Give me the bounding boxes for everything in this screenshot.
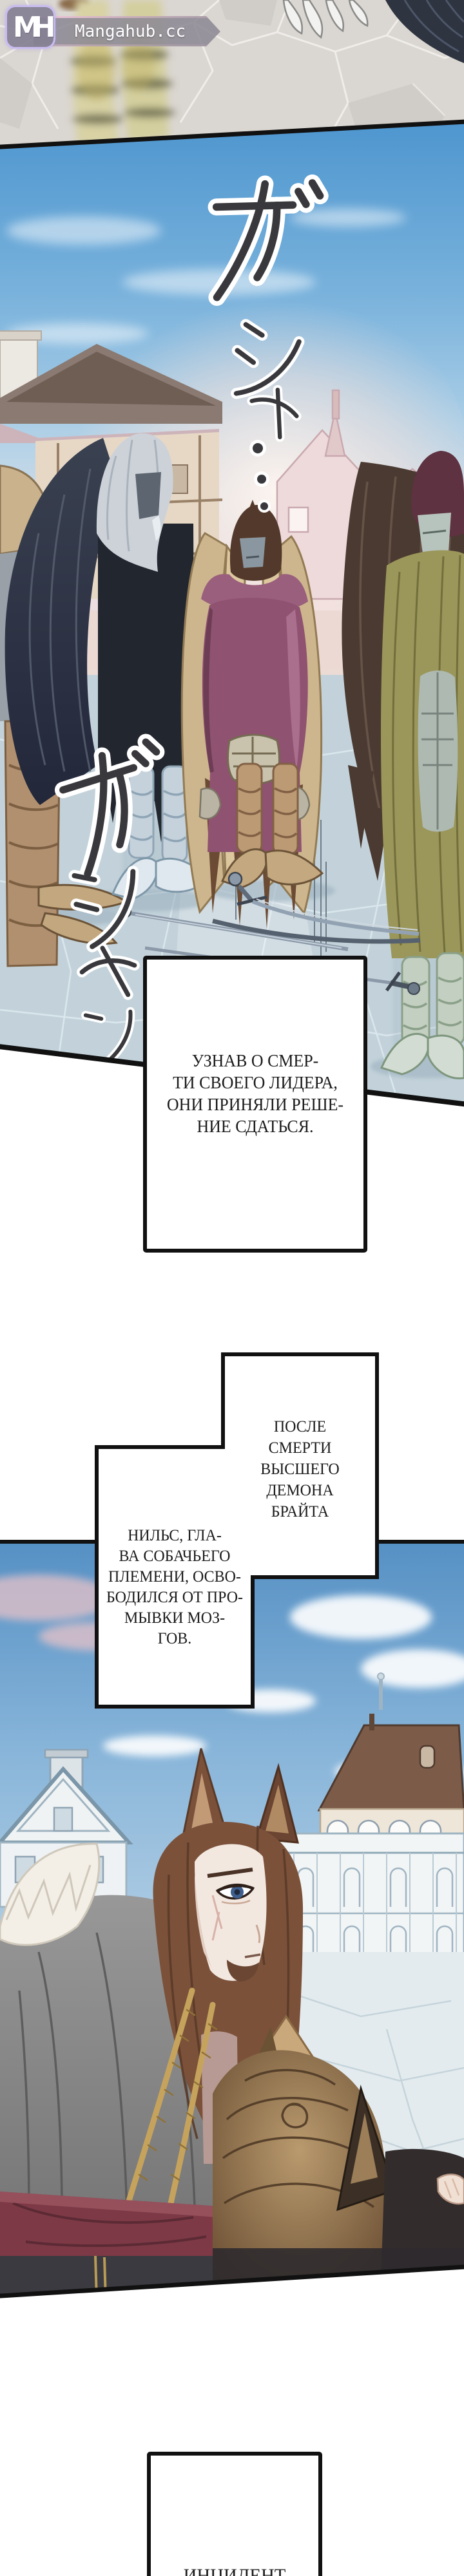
manga-page: УЗНАВ О СМЕР- ТИ СВОЕГО ЛИДЕРА, ОНИ ПРИН… xyxy=(0,0,464,2576)
narration-line: УЗНАВ О СМЕР- xyxy=(151,1050,360,1072)
right-face xyxy=(418,513,451,554)
narration-line: МЫВКИ МОЗ- xyxy=(100,1608,249,1629)
center-face xyxy=(240,537,266,568)
back-char-shoulder xyxy=(380,2149,464,2300)
narration-line: ТИ СВОЕГО ЛИДЕРА, xyxy=(151,1072,360,1094)
narration-line: ОНИ ПРИНЯЛИ РЕШЕ- xyxy=(151,1094,360,1115)
harpy-center xyxy=(182,500,322,929)
narration-line: НИЛЬС, ГЛА- xyxy=(100,1526,249,1546)
narration-box-nils: НИЛЬС, ГЛА- ВА СОБАЧЬЕГО ПЛЕМЕНИ, ОСВО- … xyxy=(97,1447,253,1785)
narration-line: БОДИЛСЯ ОТ ПРО- xyxy=(100,1587,249,1608)
narration-line: НИЕ СДАТЬСЯ. xyxy=(151,1115,360,1137)
banner-accent-stripe-bottom xyxy=(34,44,222,46)
site-name: Mangahub.cc xyxy=(75,22,186,41)
narration-box-surrender: УЗНАВ О СМЕР- ТИ СВОЕГО ЛИДЕРА, ОНИ ПРИН… xyxy=(143,956,367,1253)
logo-mh-icon: MH xyxy=(5,5,55,49)
narration-line: ПЛЕМЕНИ, ОСВО- xyxy=(100,1567,249,1587)
narration-box-incident: ИНЦИДЕНТ xyxy=(147,2452,322,2576)
narration-line: ИНЦИДЕНТ xyxy=(154,2564,315,2576)
narration-line: ВА СОБАЧЬЕГО xyxy=(100,1546,249,1567)
narration-line: ПОСЛЕ xyxy=(226,1416,374,1437)
watermark-banner: Mangahub.cc xyxy=(34,16,222,46)
narration-line: ГОВ. xyxy=(100,1629,249,1649)
logo-monogram: MH xyxy=(13,11,47,44)
shadowed-face xyxy=(135,472,161,519)
banner-accent-stripe xyxy=(34,16,222,18)
